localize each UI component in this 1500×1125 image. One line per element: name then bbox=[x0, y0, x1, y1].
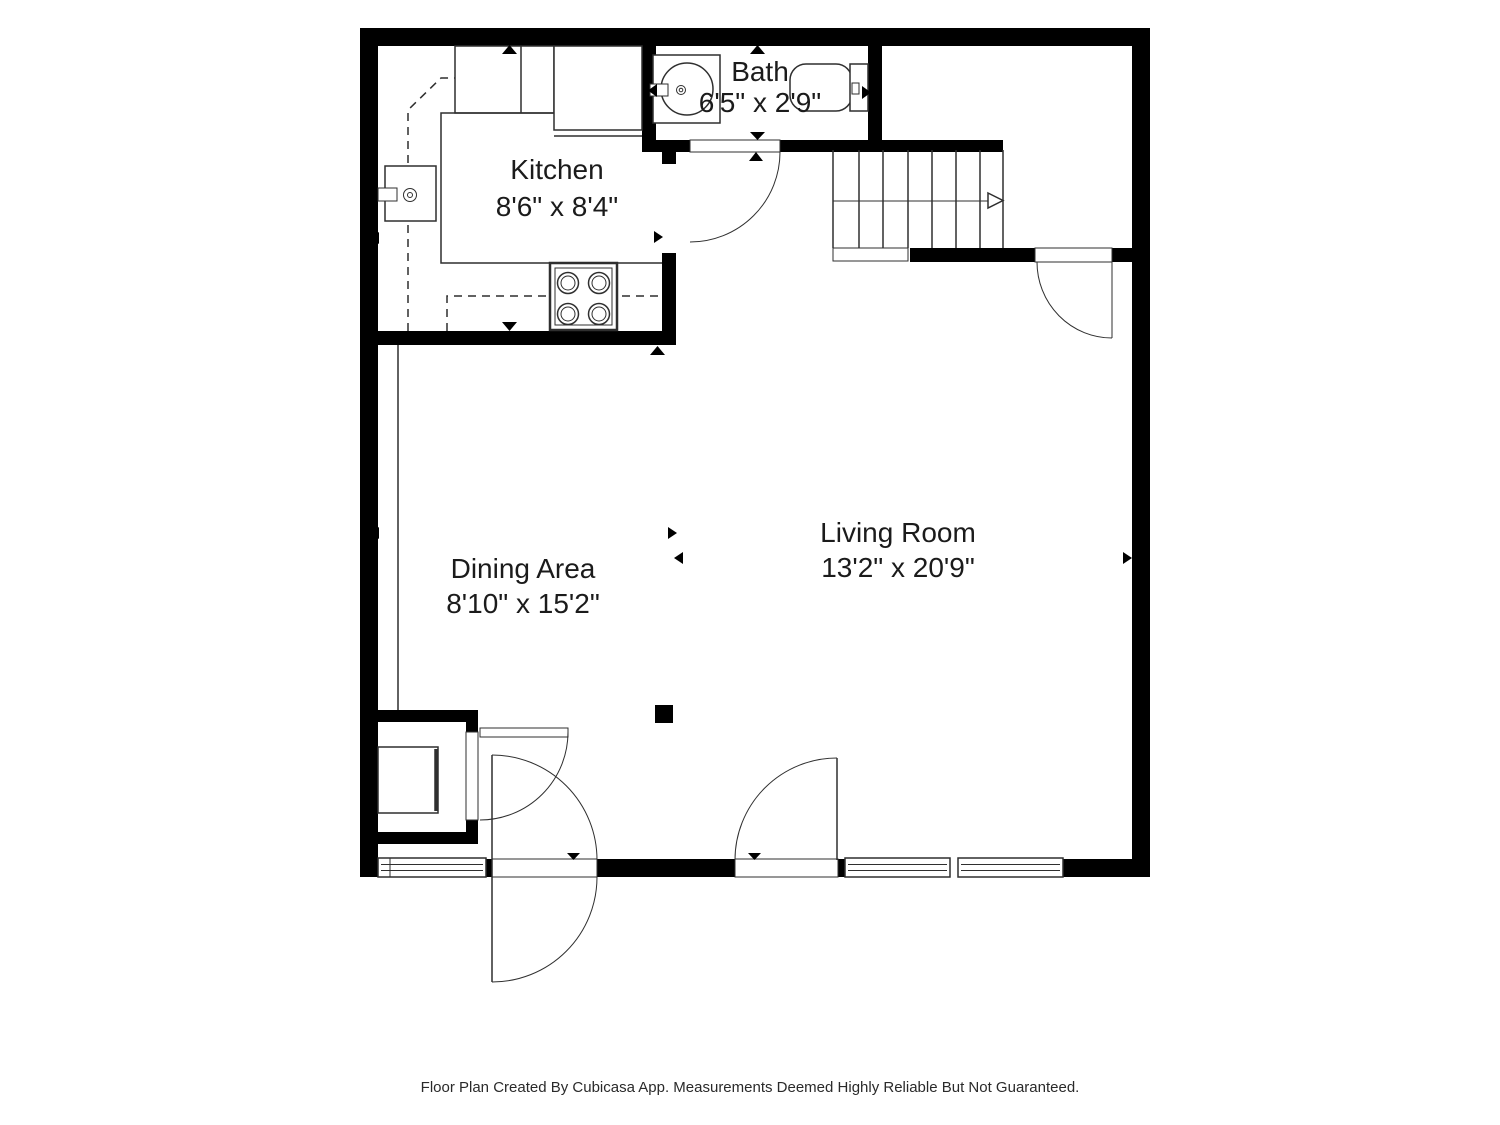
foyer-door bbox=[1035, 248, 1112, 338]
floor-plan-canvas: Bath 6'5" x 2'9" Kitchen 8'6" x 8'4" Din… bbox=[0, 0, 1500, 1125]
floor-plan-page: Bath 6'5" x 2'9" Kitchen 8'6" x 8'4" Din… bbox=[0, 0, 1500, 1125]
interior-walls bbox=[360, 46, 1132, 844]
kitchen-sink-icon bbox=[378, 166, 436, 221]
stove-icon bbox=[550, 263, 617, 330]
dining-area-label: Dining Area bbox=[451, 553, 596, 584]
stairs-icon bbox=[833, 150, 1003, 261]
entry-door bbox=[492, 755, 597, 982]
wall-direction-markers bbox=[370, 45, 1132, 860]
washer-icon bbox=[378, 747, 438, 813]
bath-label: Bath bbox=[731, 56, 789, 87]
bath-door bbox=[690, 140, 780, 242]
window-bottom-left bbox=[378, 858, 486, 877]
living-room-label: Living Room bbox=[820, 517, 976, 548]
living-room-dimensions: 13'2" x 20'9" bbox=[821, 552, 975, 583]
window-bottom-right bbox=[958, 858, 1063, 877]
kitchen-label: Kitchen bbox=[510, 154, 603, 185]
bath-dimensions: 6'5" x 2'9" bbox=[699, 87, 821, 118]
kitchen-dimensions: 8'6" x 8'4" bbox=[496, 191, 618, 222]
living-room-door bbox=[735, 758, 838, 877]
footer-disclaimer: Floor Plan Created By Cubicasa App. Meas… bbox=[421, 1079, 1080, 1096]
structural-column bbox=[655, 705, 673, 723]
window-bottom-middle bbox=[845, 858, 950, 877]
stairs-up-arrow-icon bbox=[988, 193, 1003, 208]
dining-area-dimensions: 8'10" x 15'2" bbox=[446, 588, 600, 619]
